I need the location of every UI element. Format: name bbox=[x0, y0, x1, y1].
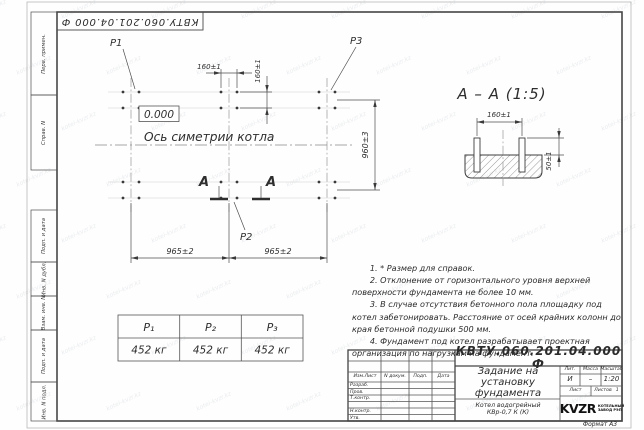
p3-label: P3 bbox=[350, 36, 362, 47]
dim-965-left-label: 965±2 bbox=[166, 247, 193, 256]
section-dim-50-label: 50±1 bbox=[545, 151, 553, 170]
format-label: Формат А3 bbox=[565, 422, 635, 430]
margin-label-podp-data-2: Подп. и дата bbox=[31, 330, 57, 382]
margin-label-vzam-inv: Взам. инв. N bbox=[31, 296, 57, 330]
tb-sheets-value: 1 bbox=[616, 388, 619, 393]
margin-label-inv-dubl: Инв. N дубл. bbox=[31, 262, 57, 296]
logo-subtext: КОТЕЛЬНЫЙ ЗАВОД РЭП bbox=[598, 404, 624, 413]
note-3: 3. В случае отсутствия бетонного пола пл… bbox=[352, 298, 628, 334]
tb-row-tkontr: Т.контр. bbox=[350, 396, 381, 401]
load-table-value-p3: 452 кг bbox=[254, 345, 290, 357]
tb-mass-value: – bbox=[580, 374, 601, 386]
tb-col-data: Дата bbox=[432, 372, 455, 382]
load-table-header-p3: P₃ bbox=[267, 321, 279, 334]
section-title: А – А (1:5) bbox=[456, 85, 546, 103]
tb-lit-value: И bbox=[560, 374, 580, 386]
tb-mass-label: Масса bbox=[580, 366, 601, 374]
load-table-value-p1: 452 кг bbox=[131, 345, 167, 357]
margin-label-sprav-n: Справ. N bbox=[31, 95, 57, 170]
logo-text: KVZR bbox=[560, 401, 596, 416]
tb-col-izm-list: Изм.Лист bbox=[349, 372, 381, 382]
anchor-bolt-left bbox=[474, 138, 480, 172]
tb-scale-label: Масштаб bbox=[601, 366, 622, 374]
anchor-bolt-right bbox=[519, 138, 525, 172]
kvzr-logo: KVZR КОТЕЛЬНЫЙ ЗАВОД РЭП bbox=[560, 396, 622, 420]
margin-label-inv-podl: Инв. N подл. bbox=[31, 382, 57, 421]
p1-label: P1 bbox=[110, 38, 122, 49]
tb-row-prov: Пров. bbox=[350, 390, 381, 395]
titleblock-product: Котел водогрейный КВр-0,7 К (К) bbox=[456, 400, 560, 419]
section-letter-right: А bbox=[265, 175, 276, 190]
p2-label: P2 bbox=[240, 232, 252, 243]
plan-dimensions bbox=[131, 69, 380, 263]
load-table-header-p1: P₁ bbox=[143, 321, 154, 334]
note-1: 1. * Размер для справок. bbox=[352, 262, 628, 274]
tb-col-podp: Подп. bbox=[409, 372, 432, 382]
dim-160-horizontal-label: 160±1 bbox=[197, 63, 221, 71]
dim-960-label: 960±3 bbox=[361, 131, 370, 158]
note-2: 2. Отклонение от горизонтального уровня … bbox=[352, 274, 628, 298]
margin-label-perv-primen: Перв. примен. bbox=[31, 12, 57, 95]
dim-965-right-label: 965±2 bbox=[264, 247, 291, 256]
top-stamp: КВТУ.060.201.04.000 Ф bbox=[57, 12, 203, 30]
section-letter-left: А bbox=[198, 175, 209, 190]
section-cut-marks bbox=[210, 186, 270, 199]
plan-centerlines bbox=[95, 78, 352, 212]
drawing-sheet: kotel-kvzr.kzkotel-kvzr.kzkotel-kvzr.kzk… bbox=[0, 0, 644, 430]
titleblock-title: Задание на установку фундамента bbox=[456, 367, 560, 398]
tb-sheets-cell: Листов 1 bbox=[591, 386, 622, 396]
elevation-label: 0.000 bbox=[144, 109, 174, 121]
tb-sheet-label: Лист bbox=[560, 386, 591, 396]
tb-row-utv: Утв. bbox=[350, 416, 381, 421]
dim-160-vertical-label: 160±1 bbox=[254, 59, 262, 83]
tb-row-razrab: Разраб. bbox=[350, 383, 381, 388]
top-stamp-text: КВТУ.060.201.04.000 Ф bbox=[61, 16, 198, 27]
tb-col-ndokum: N докум. bbox=[381, 372, 409, 382]
tb-sheets-label: Листов bbox=[594, 388, 612, 393]
load-table-header-p2: P₂ bbox=[205, 321, 217, 334]
tb-scale-value: 1:20 bbox=[601, 374, 622, 386]
load-table-value-p2: 452 кг bbox=[193, 345, 229, 357]
titleblock-doc-number: КВТУ.060.201.04.000 Ф bbox=[456, 351, 621, 365]
tb-lit-label: Лит. bbox=[560, 366, 580, 374]
symmetry-axis-label: Ось симетрии котла bbox=[144, 130, 274, 144]
section-dim-160-label: 160±1 bbox=[487, 111, 511, 119]
tb-row-nkontr: Н.контр. bbox=[350, 409, 381, 414]
margin-label-podp-data-1: Подп. и дата bbox=[31, 210, 57, 262]
